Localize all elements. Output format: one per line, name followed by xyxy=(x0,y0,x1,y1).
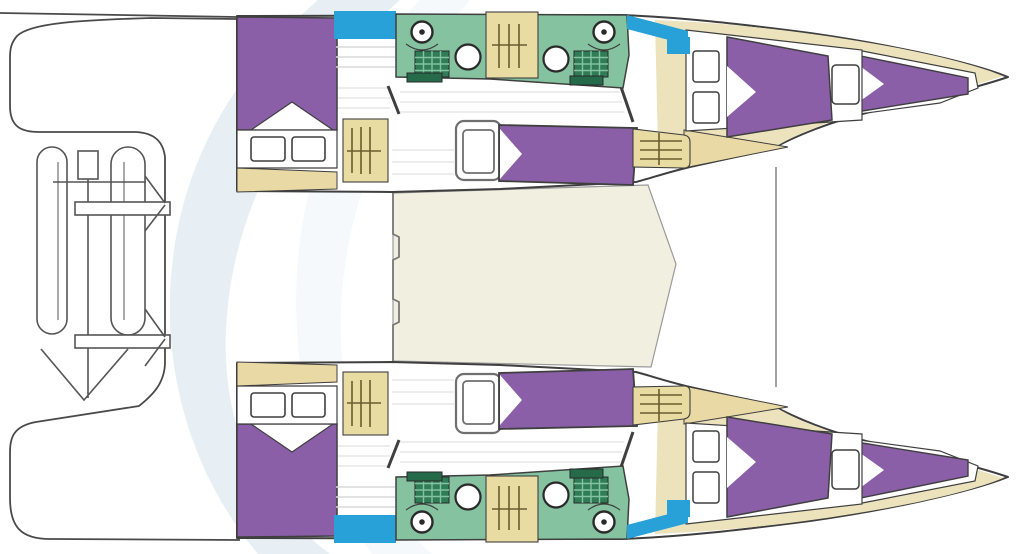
davit-arm-upper xyxy=(75,202,170,215)
hull-window xyxy=(334,515,396,543)
catamaran-deck-plan xyxy=(0,0,1024,554)
pillow xyxy=(693,51,719,82)
pillow xyxy=(251,137,285,161)
hull-window xyxy=(334,11,396,39)
pillow xyxy=(693,472,719,503)
deck-window-small xyxy=(667,500,690,517)
stern-deck-edge-line xyxy=(0,13,237,17)
aft-cabin-floor-strip xyxy=(237,362,337,386)
saloon-floor xyxy=(393,185,676,367)
dinghy-tube-inner-lines xyxy=(58,162,124,320)
toilet-drain-dot xyxy=(419,29,425,35)
sink xyxy=(544,483,569,508)
pillow xyxy=(292,137,325,161)
sink xyxy=(456,45,481,70)
sink xyxy=(544,47,569,72)
deck-window-small xyxy=(667,37,690,54)
companionway-steps-forward xyxy=(633,386,690,425)
dinghy-tube-left xyxy=(37,147,67,334)
davit-arm-lower xyxy=(75,335,170,348)
davits-dinghy-group xyxy=(37,147,170,400)
outboard-engine xyxy=(78,151,98,179)
pillow xyxy=(693,431,719,462)
pillow xyxy=(693,92,719,123)
aft-cabin-floor-strip xyxy=(237,168,337,192)
companionway-steps-forward xyxy=(633,129,690,168)
toilet-drain-dot xyxy=(419,519,425,525)
toilet-drain-dot xyxy=(601,29,607,35)
pillow xyxy=(251,393,285,417)
deck-hatch xyxy=(832,65,859,104)
deck-plan-svg xyxy=(0,0,1024,554)
nightstand-hatch-inner xyxy=(463,130,494,173)
nightstand-hatch-inner xyxy=(463,381,494,424)
pillow xyxy=(292,393,325,417)
vanity-cabinet xyxy=(570,469,603,478)
toilet-drain-dot xyxy=(601,519,607,525)
vanity-cabinet xyxy=(407,73,442,82)
dinghy-tube-right xyxy=(111,147,145,335)
sink xyxy=(456,485,481,510)
deck-hatch xyxy=(832,450,859,489)
hull-port xyxy=(237,11,1008,192)
vanity-cabinet xyxy=(570,76,603,85)
hull-starboard xyxy=(237,362,1008,543)
saloon xyxy=(393,185,676,367)
dinghy-bow-vee xyxy=(41,349,128,400)
vanity-cabinet xyxy=(407,472,442,481)
